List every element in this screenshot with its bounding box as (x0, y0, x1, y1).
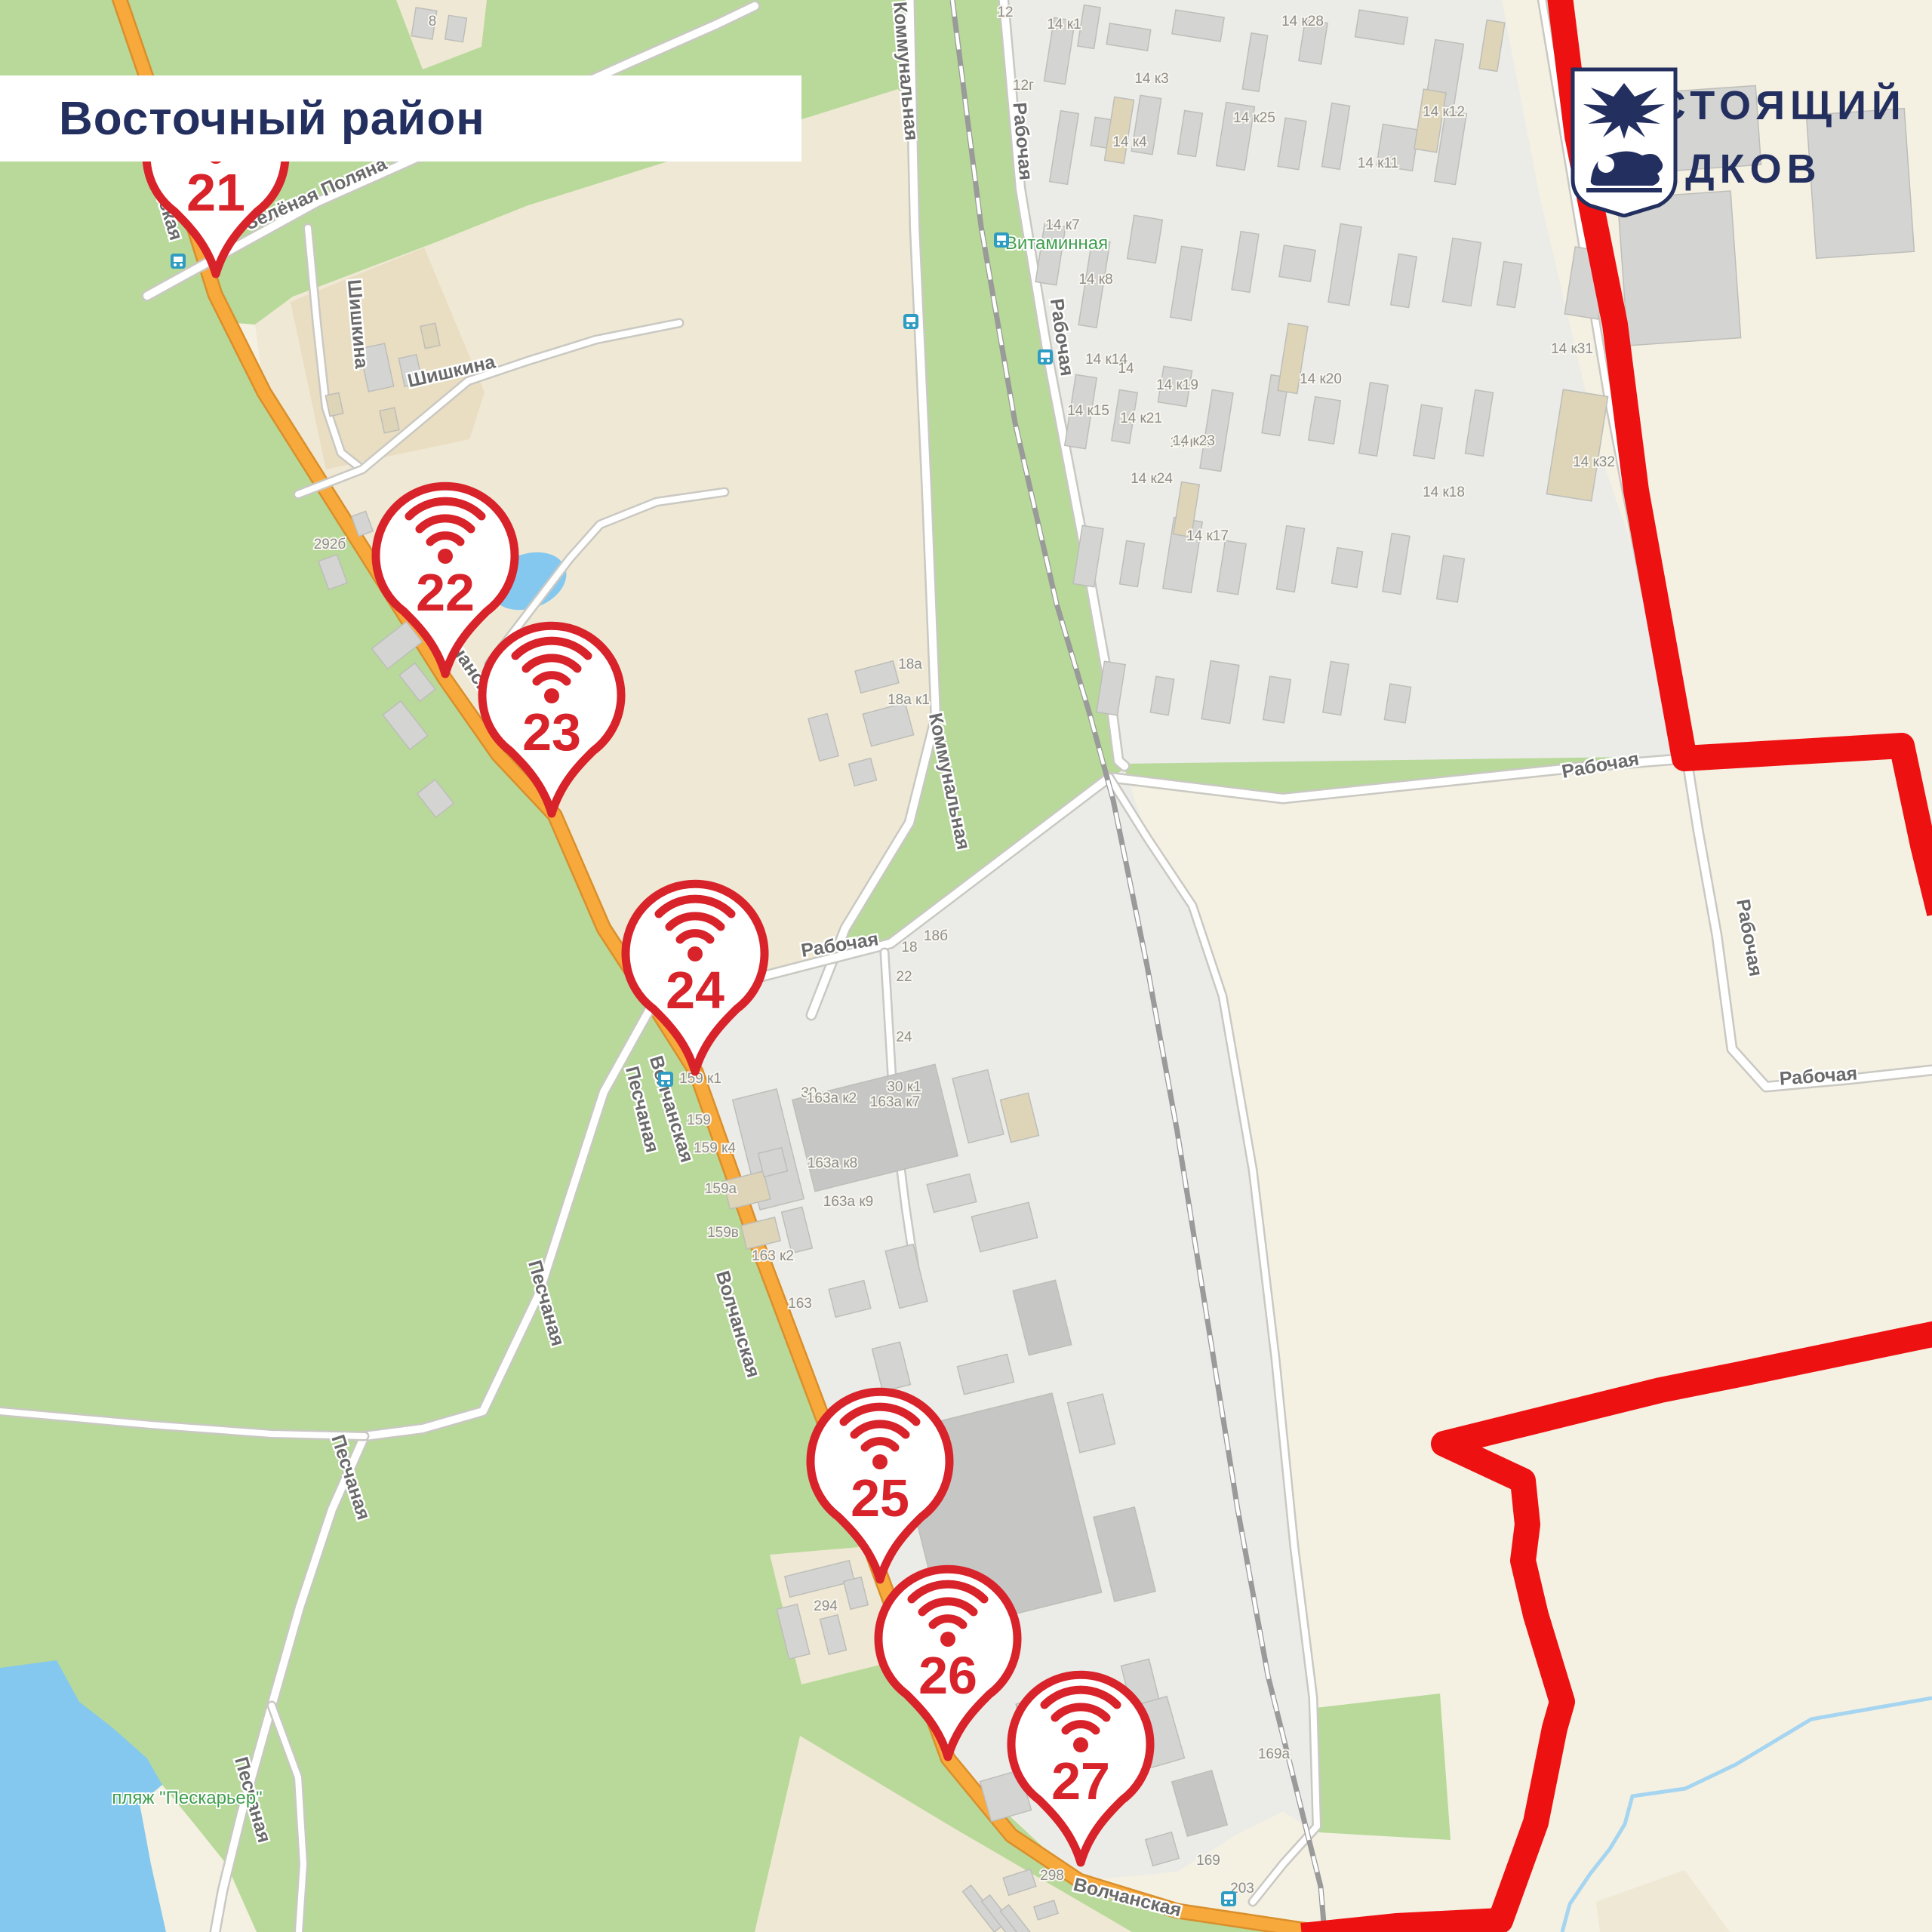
house-number: 14 к1 (1047, 17, 1081, 32)
house-number: 159 к4 (694, 1140, 736, 1156)
poi-label: пляж "Пескарьер" (112, 1788, 262, 1808)
house-number: 12 (997, 5, 1013, 20)
house-number: 14 к7 (1045, 217, 1079, 233)
house-number: 159а (705, 1181, 737, 1197)
house-number: 14 к31 (1551, 341, 1593, 357)
house-number: 159в (707, 1225, 739, 1241)
house-number: 18б (924, 928, 948, 944)
house-number: 14 к15 (1067, 403, 1109, 419)
building (758, 1148, 788, 1177)
wifi-pin-number: 27 (1051, 1752, 1110, 1810)
building (1279, 245, 1315, 281)
house-number: 14 к32 (1573, 454, 1615, 470)
house-number: 14 к24 (1131, 471, 1173, 487)
building (1331, 548, 1362, 588)
house-number: 14 к3 (1134, 71, 1168, 87)
house-number: 14 к17 (1186, 528, 1229, 544)
house-number: 163а к8 (808, 1155, 857, 1171)
wifi-pin-number: 21 (186, 163, 245, 222)
house-number: 14 к11 (1358, 155, 1398, 171)
district-banner: Восточный район (0, 75, 801, 162)
bus-stop-icon (994, 232, 1009, 248)
house-number: 24 (896, 1029, 912, 1045)
house-number: 12г (1013, 78, 1034, 94)
bus-stop-icon (1221, 1891, 1236, 1906)
map-canvas: ВолчанскаяВолчанскаяВолчанскаяВолчанская… (0, 0, 1932, 1932)
house-number: 14 к12 (1423, 104, 1465, 120)
bus-stop-icon (171, 254, 186, 269)
house-number: 14 к4 (1112, 134, 1147, 150)
wifi-pin-number: 25 (851, 1469, 909, 1527)
house-number: 14 к19 (1156, 377, 1198, 393)
house-number: 294 (814, 1598, 838, 1614)
house-number: 30 к1 (887, 1079, 921, 1095)
house-number: 298 (1040, 1868, 1064, 1884)
house-number: 292б (314, 537, 346, 552)
coat-of-arms-icon (1568, 66, 1680, 217)
bus-stop-icon (658, 1072, 673, 1087)
house-number: 159 (687, 1112, 711, 1128)
district-title: Восточный район (59, 92, 485, 146)
house-number: 14 к18 (1423, 485, 1465, 500)
house-number: 163а к9 (823, 1194, 873, 1210)
building (1128, 215, 1163, 263)
house-number: 14 к21 (1120, 411, 1162, 426)
house-number: 163а к2 (807, 1091, 857, 1106)
house-number: 14 (1118, 361, 1134, 377)
building (849, 758, 877, 786)
house-number: 14 к20 (1300, 371, 1342, 387)
wifi-pin-number: 22 (416, 563, 475, 622)
house-number: 8 (429, 14, 437, 29)
house-number: 18а (898, 657, 922, 672)
house-number: 163 к2 (752, 1248, 794, 1264)
wifi-pin-number: 26 (918, 1646, 977, 1705)
house-number: 18а к1 (888, 692, 930, 708)
map-screenshot: ВолчанскаяВолчанскаяВолчанскаяВолчанская… (0, 0, 1932, 1932)
building (445, 15, 467, 42)
house-number: 14 к28 (1281, 14, 1324, 29)
house-number: 169а (1258, 1746, 1291, 1762)
wifi-pin-number: 23 (522, 703, 581, 761)
bus-stop-icon (1038, 349, 1053, 365)
house-number: 14 к8 (1078, 272, 1112, 288)
house-number: 18 (901, 940, 917, 955)
house-number: 14 к23 (1173, 433, 1215, 449)
house-number: 159 к1 (679, 1071, 721, 1087)
house-number: 169 (1196, 1853, 1220, 1869)
wifi-pin-number: 24 (666, 961, 724, 1020)
house-number: 163 (788, 1296, 812, 1312)
house-number: 14 к25 (1233, 110, 1275, 126)
bus-stop-icon (903, 314, 918, 329)
house-number: 22 (896, 969, 912, 985)
house-number: 163а к7 (870, 1094, 920, 1110)
poi-label: Витаминная (1005, 233, 1108, 254)
brand-logo: НАСТОЯЩИЙ ГЛАДКОВ (1568, 66, 1906, 201)
